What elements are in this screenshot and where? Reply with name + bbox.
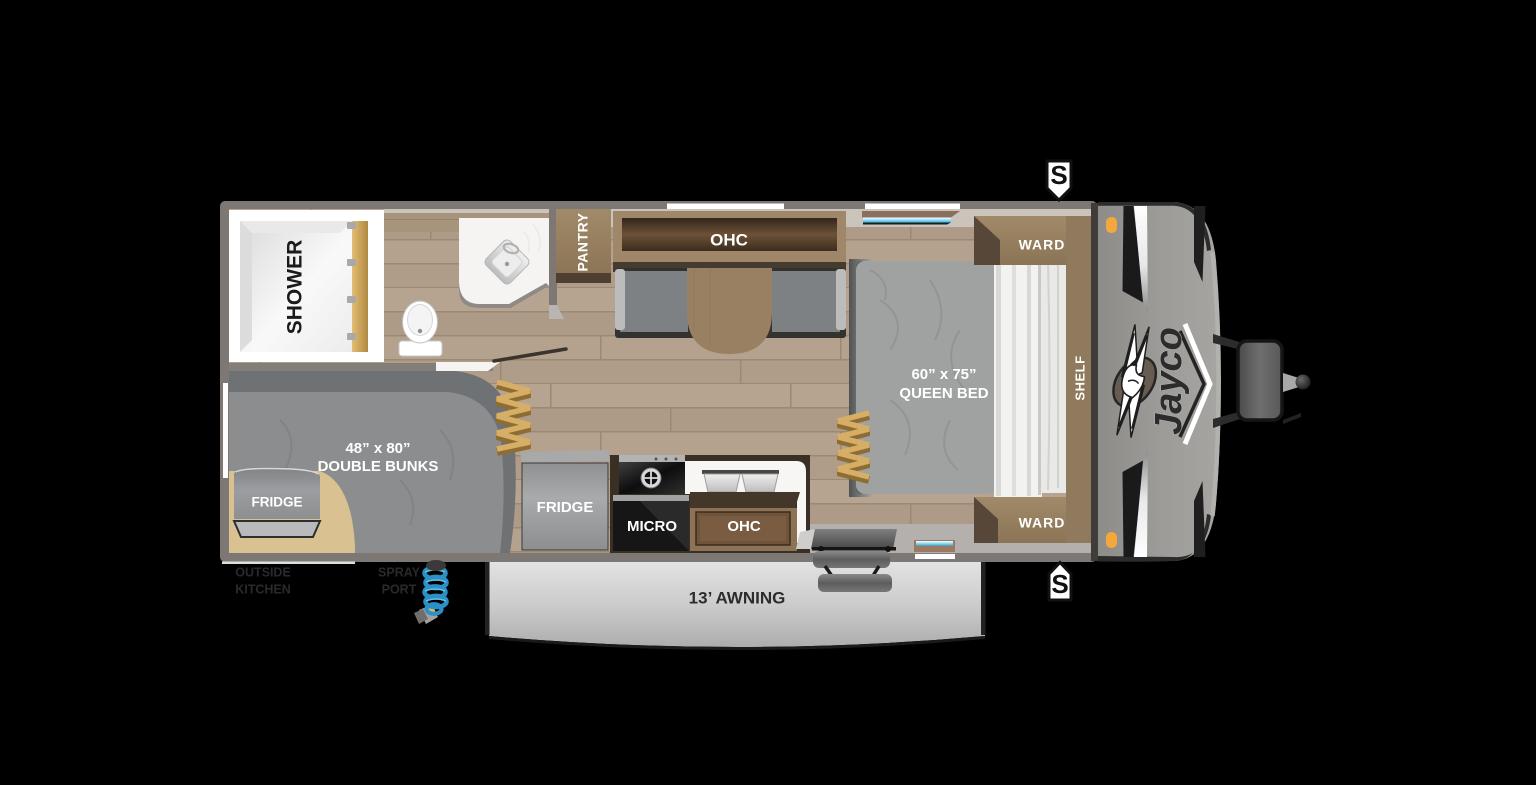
svg-text:MICRO: MICRO (627, 518, 677, 535)
svg-text:DOUBLE BUNKS: DOUBLE BUNKS (318, 458, 439, 475)
svg-text:WARD: WARD (1019, 515, 1066, 531)
svg-text:S: S (1050, 160, 1067, 190)
svg-text:SPRAY: SPRAY (378, 565, 421, 579)
svg-text:FRIDGE: FRIDGE (537, 499, 594, 516)
svg-text:60” x 75”: 60” x 75” (911, 366, 976, 383)
svg-text:KITCHEN: KITCHEN (235, 582, 291, 596)
svg-text:QUEEN BED: QUEEN BED (899, 385, 988, 402)
svg-text:SHOWER: SHOWER (284, 240, 307, 335)
svg-text:PANTRY: PANTRY (575, 212, 591, 271)
svg-text:WARD: WARD (1019, 237, 1066, 253)
svg-text:OHC: OHC (727, 518, 761, 535)
svg-text:PORT: PORT (382, 582, 417, 596)
svg-text:FRIDGE: FRIDGE (251, 495, 302, 510)
svg-text:OUTSIDE: OUTSIDE (235, 565, 291, 579)
svg-text:OHC: OHC (710, 230, 748, 249)
svg-text:SHELF: SHELF (1072, 355, 1087, 400)
svg-text:13’ AWNING: 13’ AWNING (689, 588, 786, 607)
svg-text:48” x 80”: 48” x 80” (345, 440, 410, 457)
svg-text:S: S (1051, 569, 1068, 599)
